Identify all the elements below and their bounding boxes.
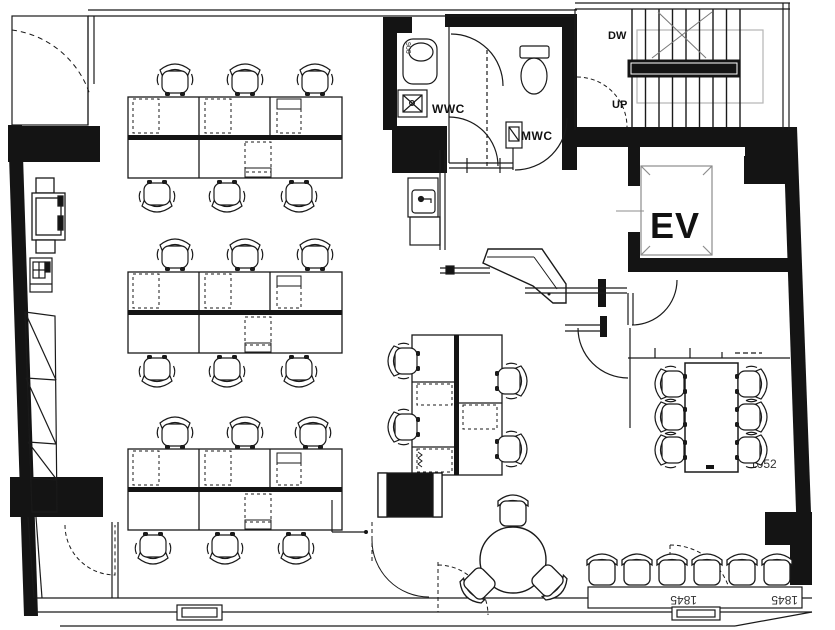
floor-plan-drawing: DW UP EV WWC MWC 900: [0, 0, 835, 630]
office-chair: [281, 355, 317, 387]
wc-bottomleft-block: [392, 126, 447, 173]
bench-chair: [692, 554, 722, 585]
bench-chair: [727, 554, 757, 585]
hall-door-jamb-b: [600, 316, 607, 337]
ev-bottom-wall: [630, 258, 790, 272]
office-chair: [139, 180, 175, 212]
stair-down-label: DW: [608, 30, 627, 42]
office-chair: [227, 239, 263, 271]
door-dim-label-b: 1845: [771, 593, 798, 607]
door-swings: [12, 30, 732, 615]
office-chair: [281, 180, 317, 212]
mwc-label: MWC: [521, 129, 553, 143]
office-chair: [227, 64, 263, 96]
door-threshold-left: [177, 605, 222, 620]
bottomleft-door-arc: [65, 525, 115, 575]
meeting-chair: [655, 399, 687, 435]
office-chair: [207, 532, 243, 564]
low-cabinet: [378, 473, 442, 517]
wc-toilet: [520, 46, 549, 94]
meeting-chair: [655, 366, 687, 402]
office-chair: [227, 417, 263, 449]
office-chair: [157, 239, 193, 271]
reception-counter: [483, 249, 566, 303]
sink-dim-label: 900: [404, 42, 411, 54]
office-chair: [297, 239, 333, 271]
office-chair: [139, 355, 175, 387]
office-chair: [157, 417, 193, 449]
desk-bank-2: [128, 272, 342, 353]
meeting-chair: [735, 399, 767, 435]
office-chair: [157, 64, 193, 96]
office-chair: [209, 180, 245, 212]
door-threshold-right: [672, 607, 720, 620]
right-wall: [783, 127, 812, 540]
office-chair: [135, 532, 171, 564]
right-bottom-block-a: [765, 512, 812, 545]
wc-left-wall: [383, 17, 397, 130]
meeting-chair: [735, 432, 767, 468]
ev-topright-block: [744, 156, 790, 184]
meeting-chair: [735, 366, 767, 402]
office-chair: [295, 417, 331, 449]
stair-break-mark: [652, 12, 712, 58]
entry-door-arc: [12, 30, 90, 95]
copier: [32, 178, 65, 253]
right-bottom-block-b: [790, 545, 812, 585]
bench-chair: [622, 554, 652, 585]
left-wall-block-top: [8, 126, 100, 162]
floor-plan: DW UP EV WWC MWC 900: [0, 0, 835, 630]
desk-bank-4: [412, 335, 502, 475]
stair-up-label: UP: [612, 99, 627, 111]
side-chair: [498, 495, 528, 526]
bank-door-arc: [372, 540, 429, 597]
office-chair: [297, 64, 333, 96]
elevator-label: EV: [650, 205, 700, 246]
staircase: DW UP: [608, 9, 763, 127]
mwc-sink: [506, 122, 522, 148]
desk-bank-3: [128, 449, 342, 530]
wc-topleft-block: [383, 17, 412, 33]
wc-mop-sink: [398, 90, 427, 117]
bench-chair: [762, 554, 792, 585]
ev-left-wall-a: [628, 140, 640, 186]
office-chair: [209, 355, 245, 387]
bench-chair: [587, 554, 617, 585]
door-dim-label-a: 1845: [670, 593, 697, 607]
meeting-chair: [655, 432, 687, 468]
bench-chair: [657, 554, 687, 585]
desk-bank-1: [128, 97, 342, 178]
meeting-table: [685, 363, 738, 472]
small-cabinet: [30, 258, 52, 292]
wwc-label: WWC: [432, 102, 465, 116]
office-chair: [278, 532, 314, 564]
